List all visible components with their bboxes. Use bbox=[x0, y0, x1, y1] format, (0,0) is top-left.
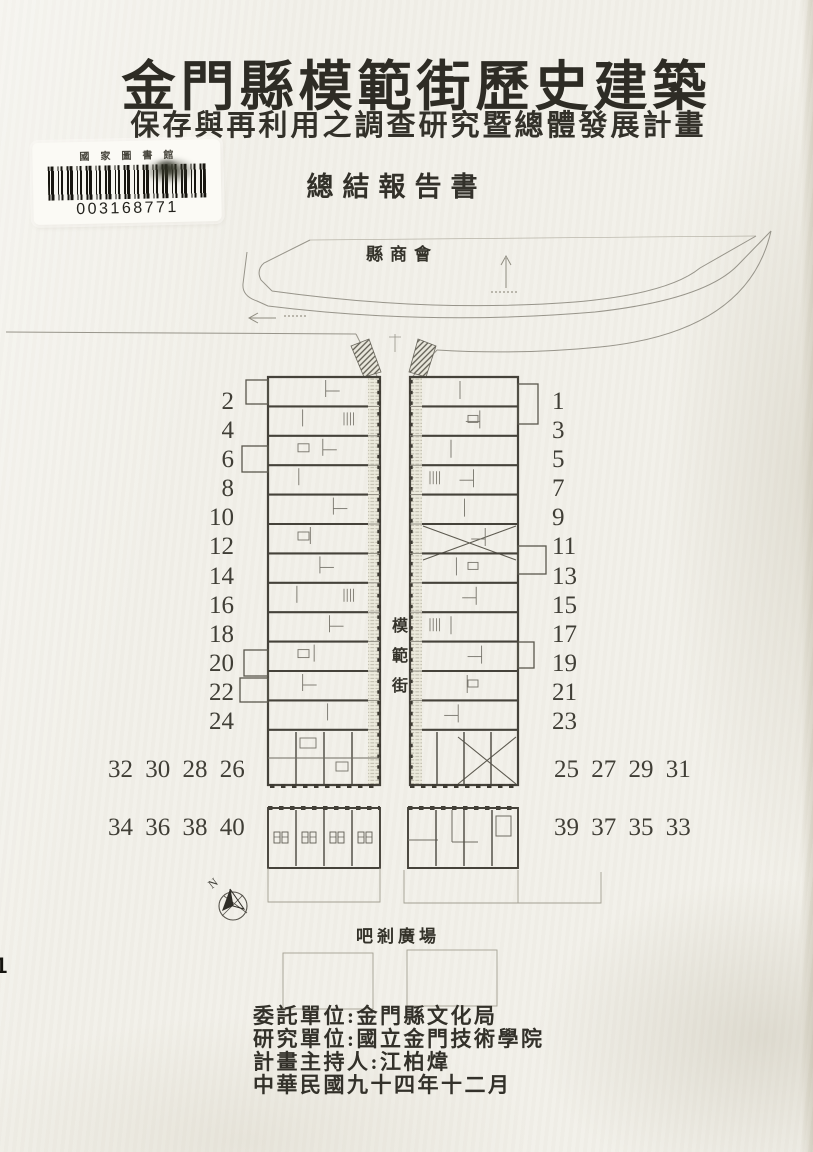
street-number: 21 bbox=[552, 678, 632, 707]
credit-line: 研究單位:國立金門技術學院 bbox=[253, 1028, 545, 1051]
book-cover: N 金門縣模範街歷史建築 保存與再利用之調查研究暨總體發展計畫 總結報告書 國家… bbox=[0, 0, 813, 1152]
street-numbers-right: 1357911131517192123 bbox=[552, 387, 632, 736]
row-numbers-southeast: 25 27 29 31 bbox=[554, 756, 691, 784]
row-numbers-far-southeast: 39 37 35 33 bbox=[554, 814, 691, 842]
compass-icon: N bbox=[205, 875, 247, 920]
street-number: 15 bbox=[552, 591, 632, 620]
ink-smudge bbox=[154, 158, 180, 177]
street-number: 5 bbox=[552, 445, 632, 474]
street-number: 3 bbox=[552, 416, 632, 445]
street-number: 22 bbox=[150, 678, 234, 707]
street-number: 17 bbox=[552, 620, 632, 649]
street-number: 18 bbox=[150, 620, 234, 649]
street-number: 24 bbox=[150, 707, 234, 736]
street-number: 9 bbox=[552, 503, 632, 532]
street-number: 8 bbox=[150, 474, 234, 503]
barcode-image bbox=[48, 163, 207, 200]
street-name-label: 模範街 bbox=[385, 617, 409, 707]
barcode-number: 003168771 bbox=[33, 198, 221, 220]
credit-line: 委託單位:金門縣文化局 bbox=[253, 1005, 545, 1028]
north-indicator-label: N bbox=[205, 875, 221, 892]
credit-line: 計畫主持人:江柏煒 bbox=[253, 1051, 545, 1074]
credits-block: 委託單位:金門縣文化局研究單位:國立金門技術學院計畫主持人:江柏煒中華民國九十四… bbox=[253, 1005, 545, 1097]
street-number: 16 bbox=[150, 591, 234, 620]
south-row-blocks bbox=[268, 808, 518, 868]
arrow-up-icon bbox=[501, 256, 511, 288]
street-number: 19 bbox=[552, 649, 632, 678]
street-number: 6 bbox=[150, 445, 234, 474]
street-number: 11 bbox=[552, 532, 632, 561]
south-row-interior bbox=[408, 810, 511, 842]
row-numbers-far-southwest: 34 36 38 40 bbox=[108, 814, 230, 842]
street-entry-hatching bbox=[351, 339, 436, 377]
street-number: 20 bbox=[150, 649, 234, 678]
street-number: 4 bbox=[150, 416, 234, 445]
plaza-label: 吧剎廣場 bbox=[356, 922, 440, 947]
page-subtitle: 保存與再利用之調查研究暨總體發展計畫 bbox=[12, 102, 813, 144]
street-number: 7 bbox=[552, 474, 632, 503]
row-numbers-southwest: 32 30 28 26 bbox=[108, 756, 230, 784]
building-strips bbox=[268, 377, 518, 785]
street-numbers-left: 24681012141618202224 bbox=[150, 387, 234, 736]
street-number: 12 bbox=[150, 532, 234, 561]
street-number: 1 bbox=[552, 387, 632, 416]
street-number: 23 bbox=[552, 707, 632, 736]
street-number: 13 bbox=[552, 562, 632, 591]
credit-line: 中華民國九十四年十二月 bbox=[253, 1074, 545, 1097]
page-edge-mark: 1 bbox=[0, 953, 7, 979]
street-number: 10 bbox=[150, 503, 234, 532]
county-chamber-label: 縣商會 bbox=[366, 240, 438, 265]
street-number: 14 bbox=[150, 562, 234, 591]
street-number: 2 bbox=[150, 387, 234, 416]
arrow-left-icon bbox=[249, 313, 276, 323]
library-barcode-sticker: 國家圖書館 003168771 bbox=[32, 139, 222, 225]
